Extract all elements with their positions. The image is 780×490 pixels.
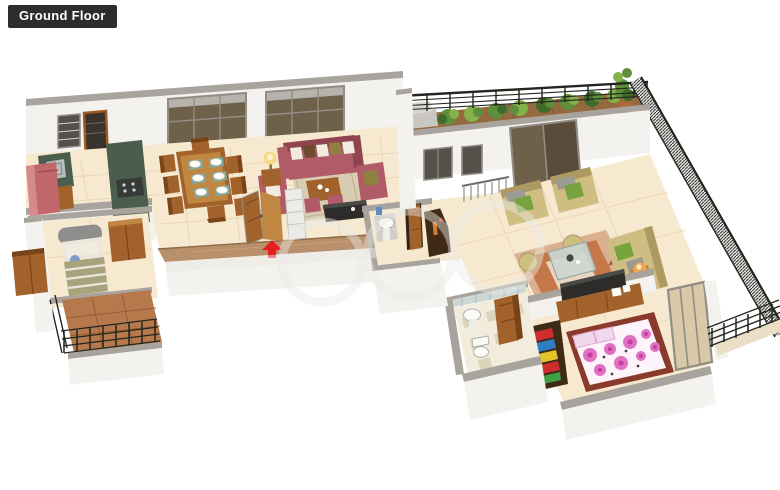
armchair-right [356, 162, 388, 201]
hall-window [424, 147, 452, 180]
entrance-door[interactable] [242, 191, 283, 245]
hall-window-small [462, 145, 482, 175]
ottoman [304, 197, 321, 213]
dining-chair [159, 154, 176, 173]
sofa-cushion [329, 142, 342, 155]
wardrobe-right [108, 218, 146, 262]
dining-chair [226, 155, 243, 174]
dining-chair [207, 205, 226, 223]
living-french-window [266, 86, 344, 138]
floor-plan-page: Ground Floor [0, 0, 780, 490]
sofa-cushion [303, 145, 316, 158]
balcony-left [50, 287, 162, 353]
sofa-cushion [316, 144, 329, 157]
sofa-cushion [290, 147, 303, 160]
kitchen-hob [116, 177, 144, 198]
sofa-cushion [342, 141, 355, 154]
sliding-window[interactable] [668, 282, 712, 370]
dining-chair [167, 196, 184, 215]
wardrobe-left [12, 248, 48, 296]
bed-pillow [65, 243, 83, 257]
utility-box [412, 101, 431, 114]
dining-chair [230, 176, 247, 195]
bathroom-door[interactable] [494, 294, 523, 345]
floor-badge[interactable]: Ground Floor [8, 5, 117, 28]
refrigerator [26, 162, 60, 216]
kitchen-window-grill [58, 114, 80, 148]
bed-pillow [82, 241, 99, 255]
armchair-cushion [363, 170, 379, 186]
floor-plan-render [0, 0, 780, 490]
dining-chair [163, 175, 180, 194]
